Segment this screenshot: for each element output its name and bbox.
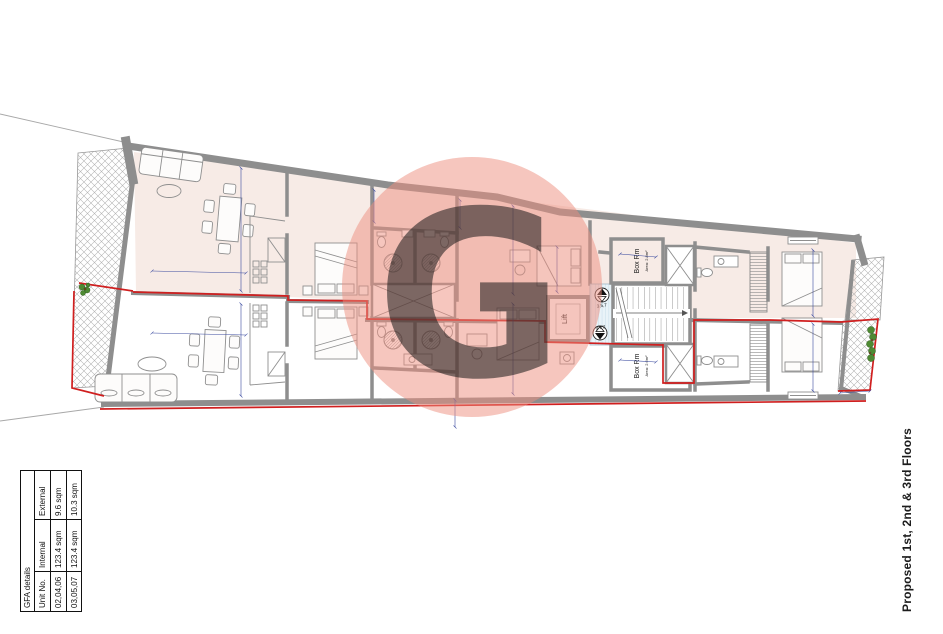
bed-lower-3	[782, 318, 822, 372]
gfa-col-unit-no: Unit No.	[35, 571, 51, 611]
box-rm-bottom-area: Area: 2.6m²	[644, 355, 649, 377]
rug-lower	[138, 357, 166, 371]
gfa-row2-internal: 123.4 sqm	[67, 519, 81, 571]
watermark: G	[342, 157, 602, 431]
gfa-row2-unit: 03,05,07	[67, 571, 81, 611]
floor-plan-canvas: Lift Box Rm Area: 2.8m² Box Rm Area: 2.6…	[0, 0, 943, 634]
gfa-col-internal: Internal	[35, 519, 51, 571]
box-rm-bottom-label: Box Rm	[634, 353, 641, 378]
sofa-lower	[95, 374, 177, 402]
gfa-row1-external: 9.6 sqm	[51, 471, 67, 519]
sheet-title-rotated: Proposed 1st, 2nd & 3rd Floors	[894, 412, 920, 612]
ac-vent-upper	[788, 237, 818, 244]
gfa-row2-external: 10.3 sqm	[67, 471, 81, 519]
kitchen-lower	[250, 303, 285, 385]
gfa-table-title: GFA details	[21, 471, 35, 611]
watermark-letter: G	[376, 164, 565, 431]
bed-upper-3	[782, 252, 822, 306]
gfa-table-rotated: GFA details Unit No. Internal External 0…	[20, 470, 82, 612]
ac-vent-lower	[788, 392, 818, 399]
drawing-sheet: Lift Box Rm Area: 2.8m² Box Rm Area: 2.6…	[0, 0, 943, 634]
dining-table-lower	[187, 316, 240, 387]
gfa-row1-unit: 02,04,06	[51, 571, 67, 611]
box-rm-top-area: Area: 2.8m²	[644, 250, 649, 272]
gfa-col-external: External	[35, 471, 51, 519]
gfa-table: GFA details Unit No. Internal External 0…	[20, 470, 82, 612]
box-rm-top-label: Box Rm	[634, 248, 641, 273]
sheet-title: Proposed 1st, 2nd & 3rd Floors	[894, 412, 920, 612]
gfa-row1-internal: 123.4 sqm	[51, 519, 67, 571]
